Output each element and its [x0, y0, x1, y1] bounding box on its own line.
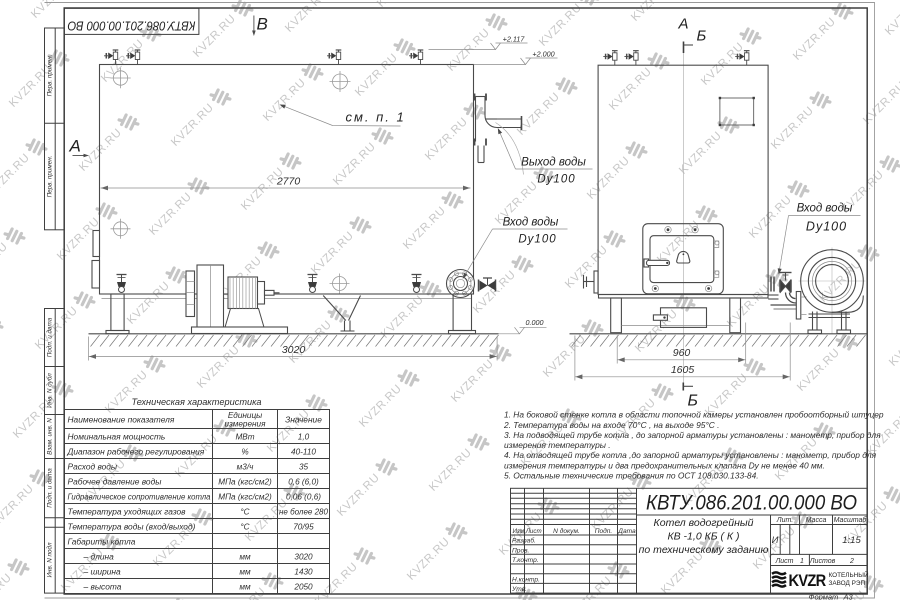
- svg-text:Подп. и дата: Подп. и дата: [46, 317, 54, 357]
- svg-text:Подп. и дата: Подп. и дата: [46, 468, 54, 508]
- svg-text:Б: Б: [697, 28, 707, 45]
- svg-text:%: %: [241, 448, 248, 457]
- svg-text:0,06 (0,6): 0,06 (0,6): [286, 493, 321, 502]
- svg-text:Листов: Листов: [809, 558, 836, 565]
- svg-text:4. На отводящей трубе котла ,: 4. На отводящей трубе котла ,до запорной…: [504, 450, 877, 460]
- svg-text:Н.контр.: Н.контр.: [512, 577, 540, 584]
- svg-text:не более 280: не более 280: [279, 508, 328, 517]
- svg-text:40-110: 40-110: [291, 448, 316, 457]
- svg-text:Лист: Лист: [774, 558, 793, 565]
- svg-text:3020: 3020: [282, 344, 306, 356]
- svg-text:Температура уходящих газов: Температура уходящих газов: [68, 507, 187, 517]
- svg-text:Dy100: Dy100: [806, 220, 847, 234]
- svg-text:Наименование показателя: Наименование показателя: [68, 415, 175, 425]
- svg-text:Выход воды: Выход воды: [521, 157, 586, 169]
- svg-text:70/95: 70/95: [293, 523, 314, 532]
- svg-text:3. На подводящей трубе котла: 3. На подводящей трубе котла , до запорн…: [504, 430, 881, 440]
- svg-text:– высота: – высота: [83, 582, 122, 592]
- svg-text:м3/ч: м3/ч: [237, 463, 254, 472]
- svg-text:2: 2: [849, 558, 854, 565]
- svg-text:А3: А3: [843, 593, 854, 600]
- svg-text:А: А: [69, 137, 81, 156]
- svg-text:МПа (кгс/см2): МПа (кгс/см2): [218, 478, 272, 487]
- svg-text:Инв. N подл: Инв. N подл: [46, 542, 54, 577]
- svg-text:измерения температуры и два пр: измерения температуры и два предохраните…: [504, 460, 825, 470]
- svg-text:Масса: Масса: [806, 517, 827, 524]
- svg-text:ЗАВОД РЭП: ЗАВОД РЭП: [829, 580, 866, 587]
- svg-text:Габариты котла: Габариты котла: [68, 537, 136, 547]
- svg-text:+2.000: +2.000: [532, 50, 554, 59]
- svg-text:МПа (кгс/см2): МПа (кгс/см2): [218, 493, 272, 502]
- svg-text:– длина: – длина: [83, 552, 115, 562]
- svg-text:Лит.: Лит.: [776, 517, 793, 524]
- svg-text:Дата: Дата: [617, 528, 636, 535]
- svg-text:– ширина: – ширина: [83, 567, 122, 577]
- svg-text:Котел водогрейный: Котел водогрейный: [654, 517, 754, 529]
- svg-text:Перв. примен.: Перв. примен.: [47, 156, 54, 198]
- svg-text:МВт: МВт: [235, 433, 254, 442]
- svg-text:Номинальная мощность: Номинальная мощность: [68, 432, 166, 442]
- svg-text:1430: 1430: [294, 568, 313, 577]
- svg-text:Вход воды: Вход воды: [503, 217, 559, 229]
- svg-text:1: 1: [800, 558, 804, 565]
- svg-text:Значение: Значение: [285, 415, 322, 425]
- svg-text:N докум.: N докум.: [553, 527, 580, 535]
- svg-text:Перв. примен.: Перв. примен.: [47, 55, 54, 97]
- svg-text:3020: 3020: [294, 553, 313, 562]
- svg-text:Подп.: Подп.: [595, 527, 613, 535]
- svg-text:+2.117: +2.117: [503, 35, 526, 44]
- svg-text:2. Температура воды на входе: 2. Температура воды на входе 70°С , на в…: [503, 420, 720, 430]
- svg-text:1. На боковой стенке котла в: 1. На боковой стенке котла в области топ…: [504, 410, 884, 420]
- svg-text:Взам. инв. N: Взам. инв. N: [47, 418, 54, 455]
- svg-text:0,6 (6,0): 0,6 (6,0): [288, 478, 319, 487]
- svg-text:В: В: [257, 15, 268, 34]
- svg-text:Расход воды: Расход воды: [68, 462, 118, 472]
- svg-text:Б: Б: [688, 393, 698, 410]
- svg-text:измерения температуры .: измерения температуры .: [504, 440, 611, 450]
- svg-text:2050: 2050: [293, 583, 313, 592]
- svg-text:по техническому заданию: по техническому заданию: [639, 544, 769, 556]
- svg-text:0.000: 0.000: [526, 318, 544, 327]
- svg-text:Т.контр.: Т.контр.: [512, 557, 539, 564]
- svg-text:°С: °С: [240, 508, 249, 517]
- svg-text:Изм.Лист: Изм.Лист: [513, 528, 542, 535]
- svg-text:Диапазон рабочего регулировани: Диапазон рабочего регулирования: [67, 447, 205, 457]
- svg-text:Вход воды: Вход воды: [797, 203, 853, 215]
- svg-text:960: 960: [673, 347, 691, 359]
- svg-text:Пров.: Пров.: [512, 547, 530, 554]
- svg-text:мм: мм: [239, 553, 251, 562]
- svg-text:А: А: [678, 16, 689, 33]
- svg-text:КВТУ.086.201.00.000 ВО: КВТУ.086.201.00.000 ВО: [646, 492, 857, 515]
- svg-text:Dy100: Dy100: [537, 174, 575, 186]
- svg-text:°С: °С: [240, 523, 249, 532]
- svg-text:Инв. N дубл: Инв. N дубл: [46, 373, 54, 408]
- svg-text:Рабочее давление воды: Рабочее давление воды: [68, 477, 162, 487]
- svg-text:1,0: 1,0: [298, 433, 310, 442]
- svg-text:Масштаб: Масштаб: [834, 516, 868, 524]
- svg-text:КВ -1,0 КБ ( К ): КВ -1,0 КБ ( К ): [667, 531, 739, 543]
- svg-text:5. Остальные технические треб: 5. Остальные технические требования по О…: [504, 471, 759, 481]
- svg-text:измерения: измерения: [225, 420, 267, 429]
- svg-text:мм: мм: [239, 583, 251, 592]
- svg-text:мм: мм: [239, 568, 251, 577]
- svg-text:см. п. 1: см. п. 1: [346, 110, 406, 125]
- svg-text:Техническая характеристика: Техническая характеристика: [131, 397, 261, 407]
- svg-text:Разраб.: Разраб.: [512, 537, 536, 545]
- svg-text:И: И: [772, 535, 779, 546]
- svg-text:KVZR: KVZR: [789, 572, 827, 590]
- svg-text:КВТУ.086.201.00.000 ВО: КВТУ.086.201.00.000 ВО: [67, 19, 195, 33]
- svg-text:1:15: 1:15: [842, 535, 861, 546]
- svg-text:35: 35: [299, 463, 309, 472]
- svg-text:КОТЕЛЬНЫЙ: КОТЕЛЬНЫЙ: [829, 570, 869, 579]
- svg-text:2770: 2770: [276, 176, 301, 188]
- svg-text:Dy100: Dy100: [518, 234, 556, 246]
- svg-text:Утв.: Утв.: [511, 586, 527, 593]
- svg-text:Гидравлическое сопротивление к: Гидравлическое сопротивление котла: [68, 492, 211, 502]
- svg-text:Формат: Формат: [809, 593, 839, 600]
- svg-text:1605: 1605: [671, 364, 695, 376]
- svg-text:Температура воды (вход/выход): Температура воды (вход/выход): [68, 522, 196, 532]
